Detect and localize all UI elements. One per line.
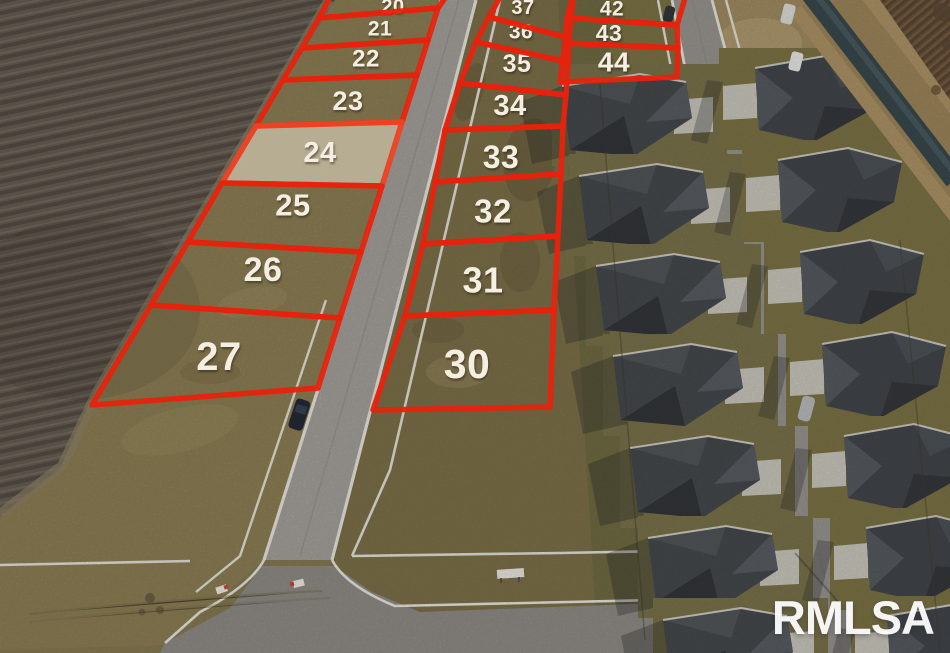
- lot-27-number: 27: [196, 335, 242, 379]
- lot-25-number: 25: [275, 188, 310, 223]
- aerial-plat-photo: 20212223242526273031323334353637424344 R…: [0, 0, 950, 653]
- lot-44-number: 44: [598, 47, 630, 78]
- lot-22-number: 22: [352, 46, 380, 73]
- watermark: RMLSA: [772, 590, 934, 645]
- lot-24-number: 24: [303, 137, 336, 169]
- lot-37-number: 37: [511, 0, 534, 19]
- photo-grain: [0, 0, 950, 653]
- lot-23-number: 23: [332, 86, 363, 116]
- lot-34-number: 34: [493, 90, 526, 122]
- lot-31-number: 31: [462, 260, 503, 301]
- lot-30-number: 30: [444, 341, 491, 387]
- lot-21-number: 21: [368, 18, 392, 41]
- aerial-scene: 20212223242526273031323334353637424344: [0, 0, 950, 653]
- lot-32-number: 32: [474, 193, 512, 230]
- lot-33-number: 33: [483, 139, 520, 175]
- lot-42-number: 42: [600, 0, 624, 21]
- lot-26-number: 26: [244, 251, 283, 289]
